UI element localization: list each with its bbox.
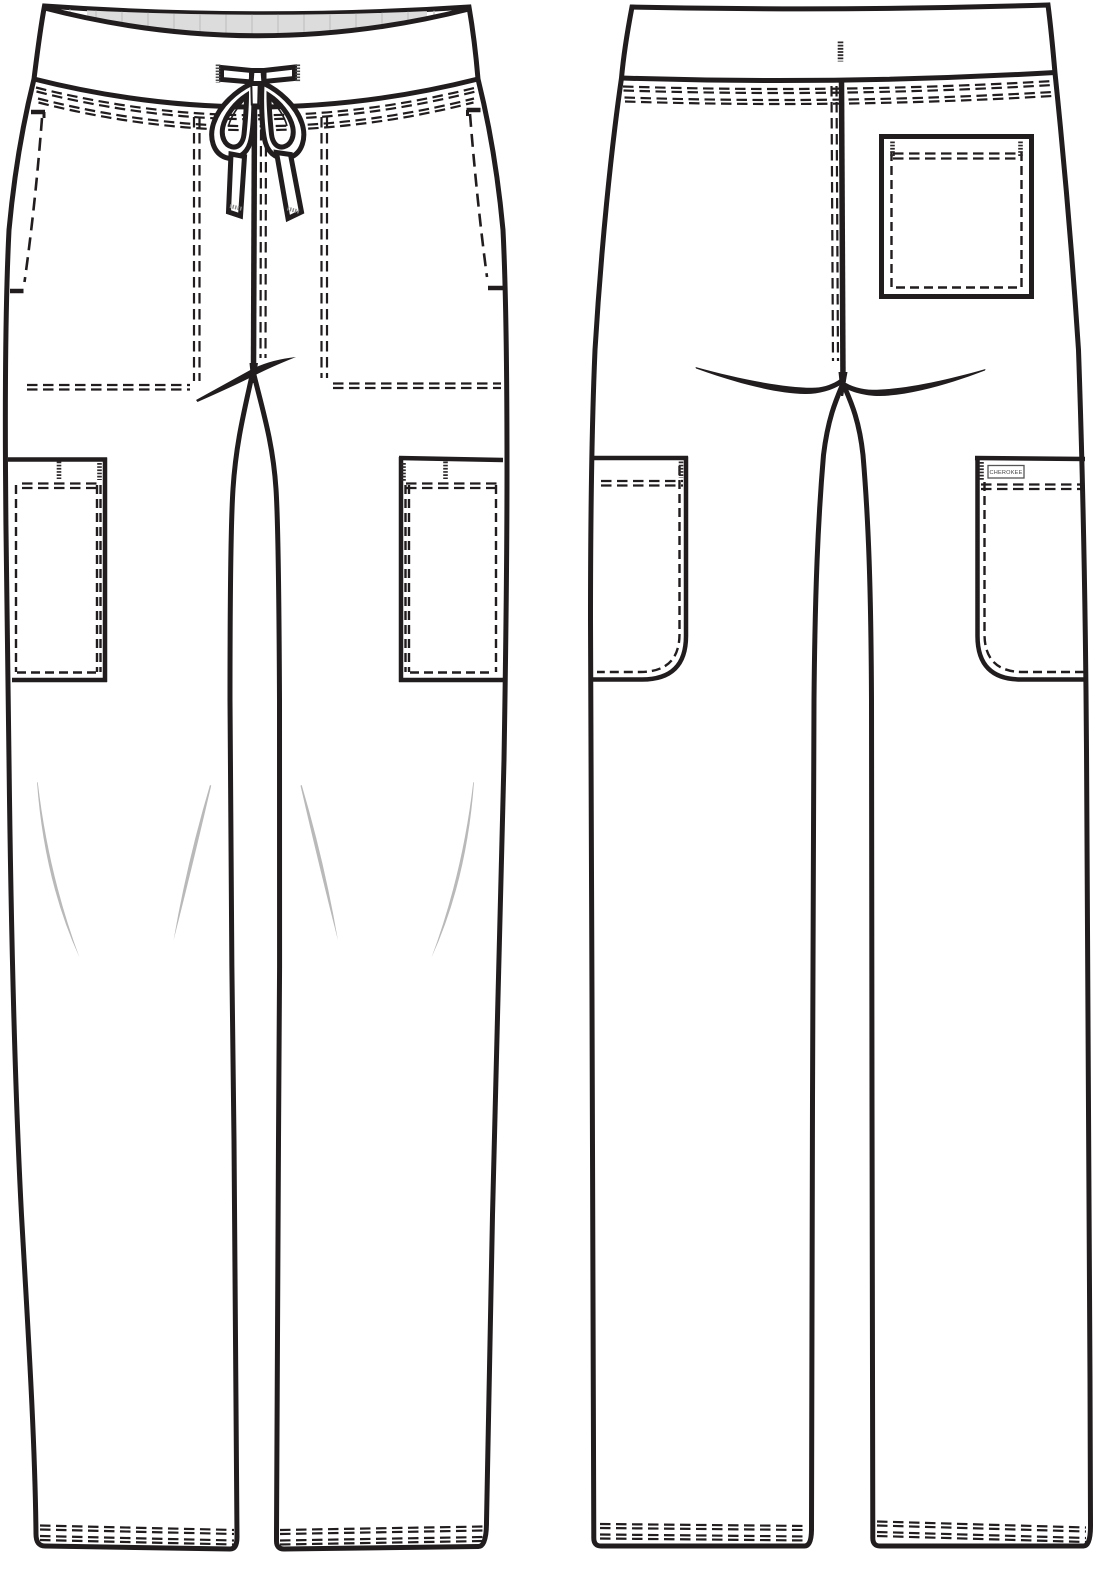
svg-text:CHEROKEE: CHEROKEE xyxy=(990,470,1023,476)
